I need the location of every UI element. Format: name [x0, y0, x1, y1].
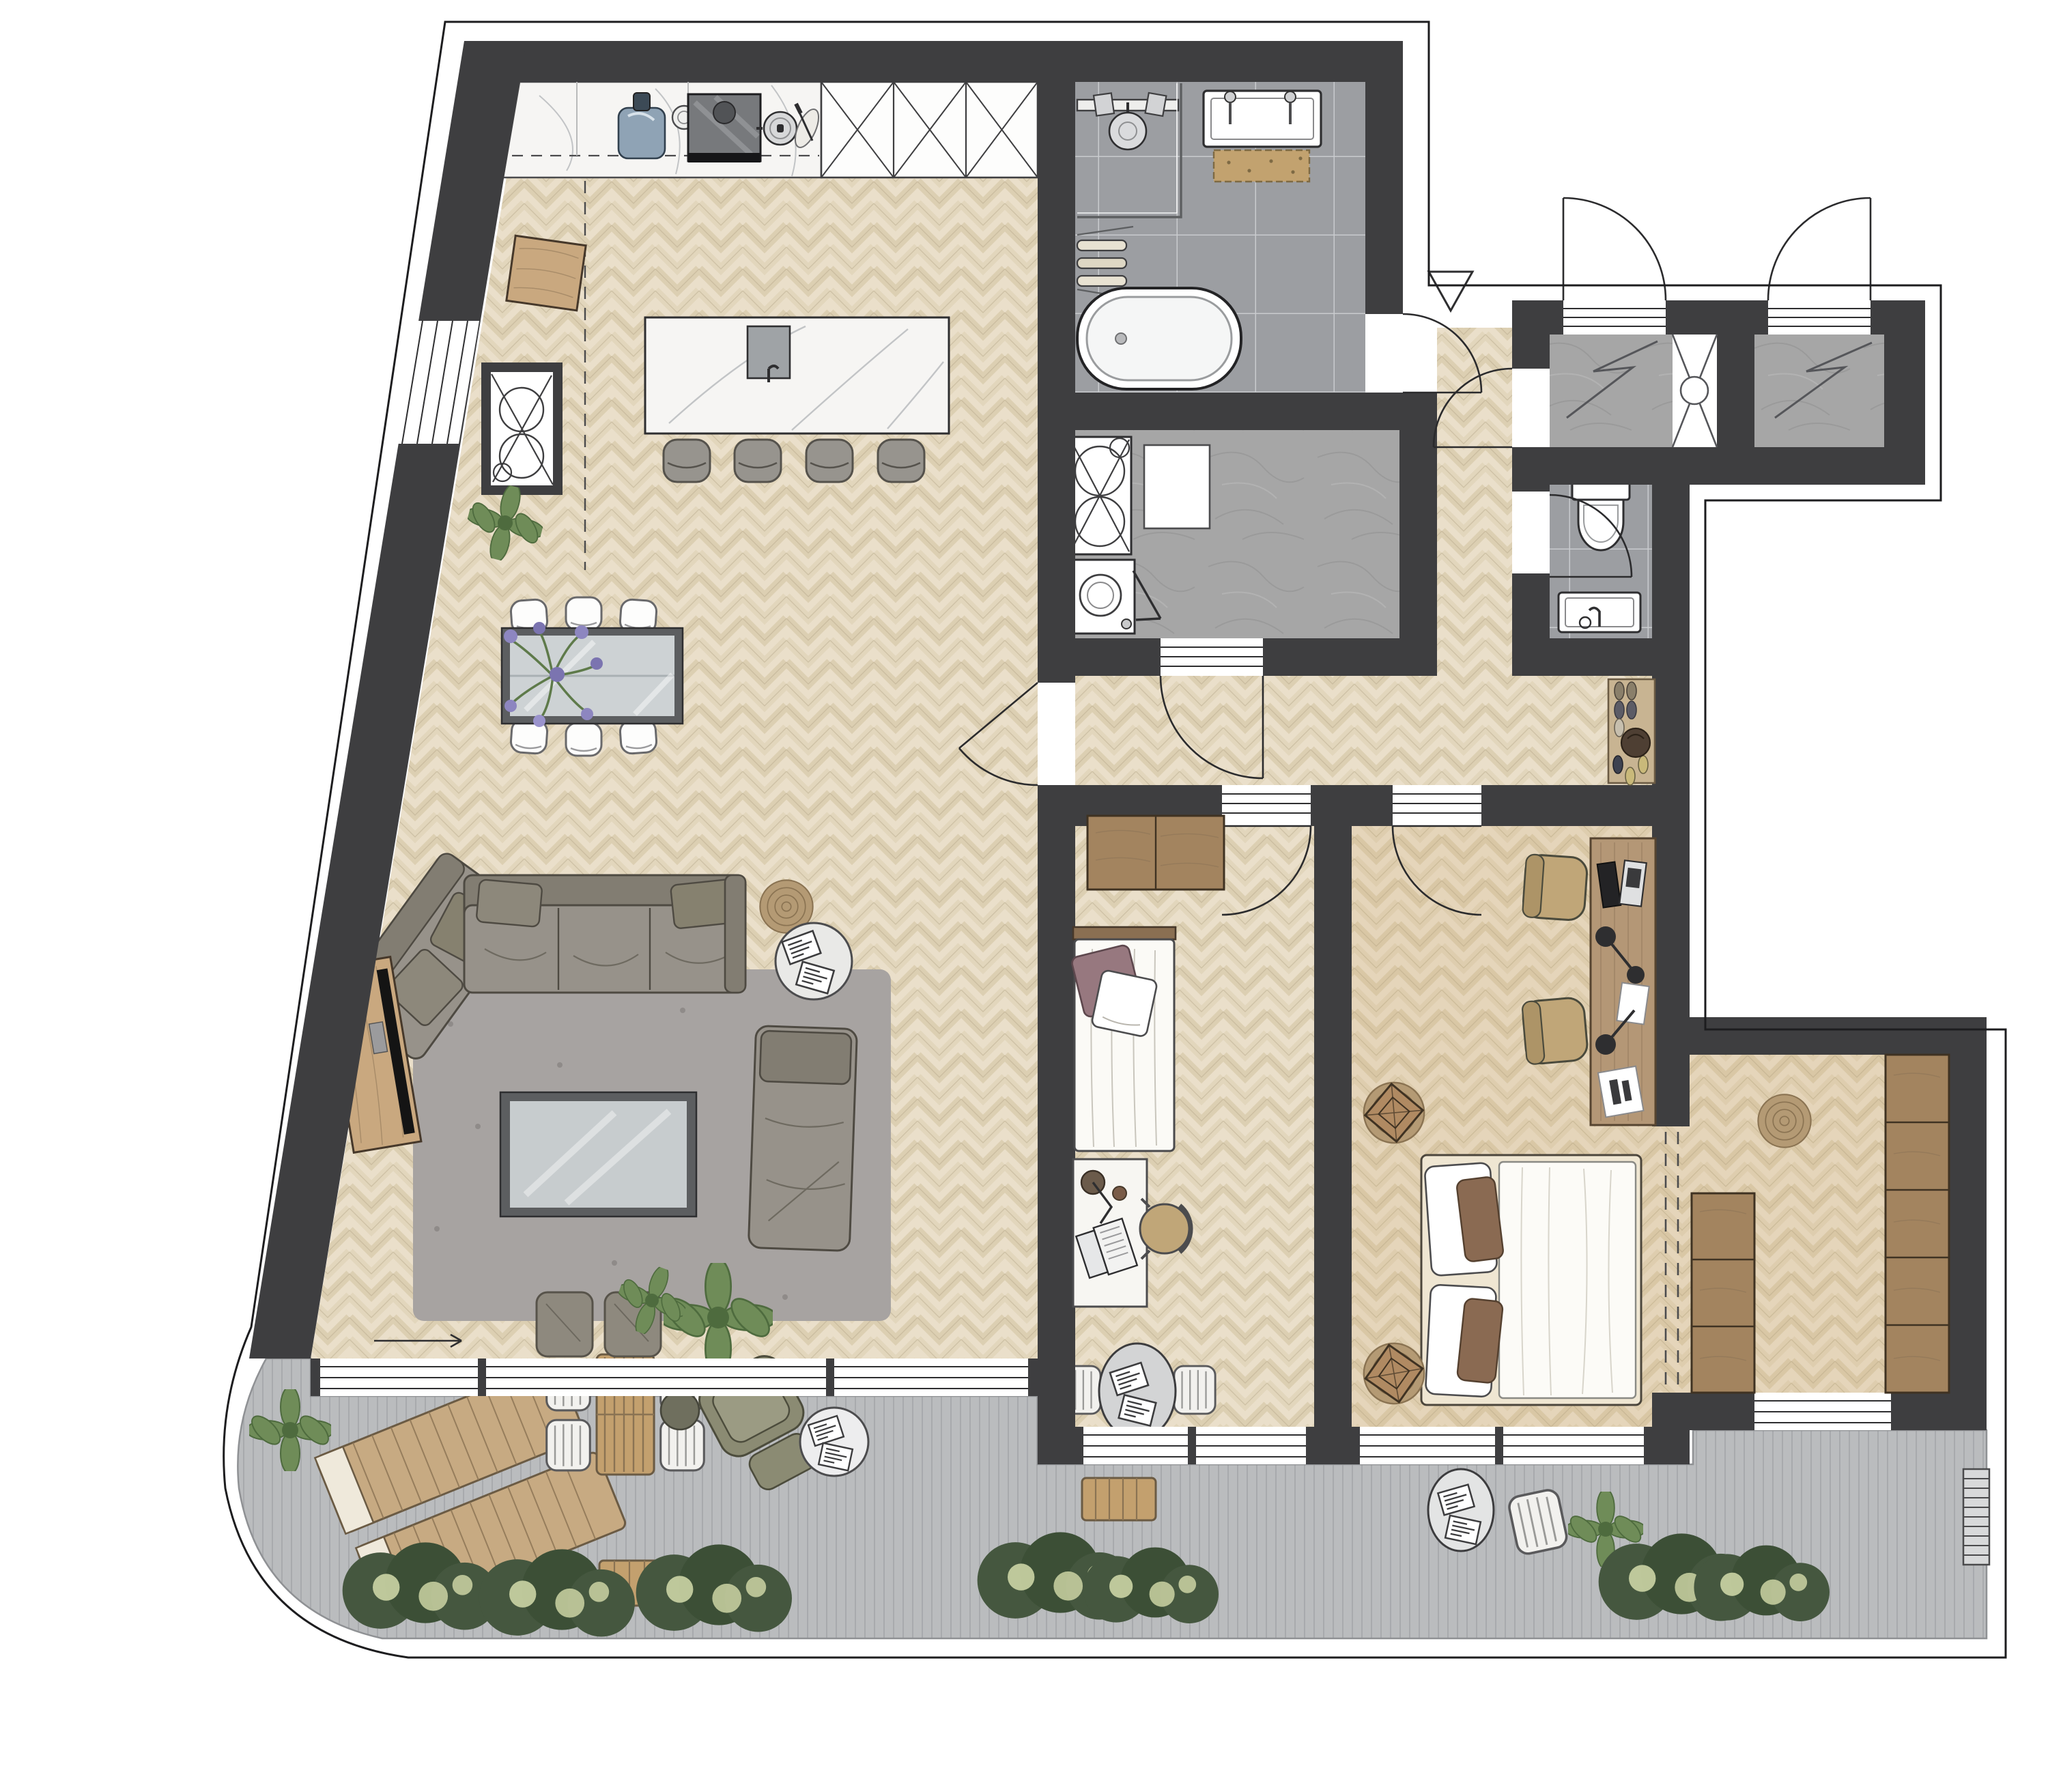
- dining-chair: [566, 723, 601, 756]
- wall-living-bedroom1: [1038, 785, 1075, 1464]
- chaise-pillow: [760, 1031, 852, 1085]
- floor-cushion: [661, 1391, 699, 1430]
- bed-pillow-brown: [1457, 1298, 1503, 1383]
- papers: [1598, 1066, 1644, 1118]
- kitchen-island: [645, 317, 949, 433]
- shoe-rack: [1608, 679, 1655, 785]
- wall-corridor-stub: [1038, 638, 1075, 683]
- wall-bedroom-divider: [1314, 785, 1352, 1427]
- window-bedroom2-south: [1352, 1427, 1652, 1464]
- vestibule1-floor: [1550, 335, 1673, 447]
- bistro-table: [1099, 1343, 1176, 1439]
- window-closet-south: [1754, 1393, 1891, 1430]
- sofa-pillow: [476, 879, 542, 927]
- wall-kitchen-bathroom: [1038, 41, 1075, 638]
- office-laptop: [1619, 860, 1647, 906]
- bedroom1-desk: [1073, 1159, 1147, 1307]
- wall-laundry-hall: [1399, 393, 1437, 676]
- wall-entry-top-a: [1512, 300, 1563, 335]
- wall-console-table: [507, 236, 586, 311]
- wc-basin: [1559, 593, 1640, 632]
- wall-wc-left-b: [1512, 573, 1550, 638]
- double-vanity: [1204, 91, 1321, 147]
- notepad: [1617, 982, 1649, 1024]
- wall-closet-bottom-b: [1891, 1393, 1987, 1430]
- office-desk: [1591, 838, 1655, 1125]
- bistro-chair: [1174, 1366, 1215, 1414]
- floor-plan: Apartment floor plan – rendered top view: [0, 0, 2048, 1792]
- dining-chair: [566, 597, 601, 630]
- wall-bedrooms-top-b: [1311, 785, 1393, 826]
- wall-entry-top-b: [1666, 300, 1768, 335]
- coffee-table: [500, 1092, 696, 1217]
- terrace-armchair: [1507, 1488, 1569, 1556]
- wall-bedrooms-top-c: [1481, 785, 1652, 826]
- entrance-marker-triangle: [1429, 272, 1473, 311]
- bag: [1621, 728, 1650, 757]
- sofa-armrest: [725, 875, 745, 993]
- boiler: [1144, 445, 1210, 528]
- wall-bedroom2-corner: [1652, 1393, 1690, 1464]
- dining-table: [502, 628, 683, 724]
- wall-closet-bottom-a: [1690, 1393, 1754, 1430]
- bar-stool: [735, 440, 781, 482]
- entry-door-2: [1768, 198, 1871, 335]
- vestibule2-floor: [1754, 335, 1884, 447]
- bathtub-drain: [1115, 333, 1126, 344]
- nightstand-top: [1364, 1083, 1424, 1143]
- closet-round-rug: [1758, 1094, 1810, 1147]
- bathtub: [1077, 288, 1241, 389]
- chaise-lounge: [748, 1026, 857, 1251]
- pillow-white: [1091, 969, 1158, 1037]
- headboard: [1073, 927, 1176, 939]
- desk-lamp-2-head: [1627, 966, 1645, 984]
- wall-bathroom-laundry: [1038, 393, 1403, 430]
- wall-laundry-bottom-right: [1263, 638, 1437, 676]
- closet-wardrobe-right: [1886, 1055, 1949, 1393]
- side-table-round: [776, 923, 852, 999]
- bar-stool: [878, 440, 924, 482]
- terrace-slat-screen: [1963, 1469, 1989, 1565]
- bar-stool: [664, 440, 710, 482]
- bar-stool: [806, 440, 853, 482]
- nightstand-bottom: [1364, 1343, 1424, 1404]
- dining-area: [502, 597, 683, 756]
- terrace-bench-2: [1082, 1478, 1156, 1520]
- duvet: [1499, 1162, 1636, 1398]
- closet-wardrobe-left: [1692, 1193, 1754, 1393]
- wall-closet-right: [1949, 1017, 1987, 1430]
- floor-plan-canvas: Apartment floor plan – rendered top view: [0, 0, 2048, 1792]
- wall-closet-top: [1652, 1017, 1987, 1055]
- cooktop: [688, 94, 760, 162]
- window-bedroom1-south: [1075, 1427, 1314, 1464]
- double-bed: [1421, 1155, 1641, 1405]
- bedroom1-bed: [1070, 927, 1176, 1151]
- terrace-chair: [547, 1420, 591, 1470]
- wall-entry-bottom: [1512, 447, 1925, 485]
- entry-door-1: [1563, 198, 1666, 335]
- faucet: [634, 93, 650, 111]
- washer-dryer-stack-symbol: [1068, 437, 1131, 554]
- wall-entry-left: [1512, 335, 1550, 369]
- bath-mat: [1214, 150, 1309, 182]
- bedroom1-wardrobe: [1087, 816, 1224, 890]
- installation-shaft-kitchen: [486, 367, 558, 490]
- wall-entry-mid: [1717, 335, 1754, 447]
- mug: [1113, 1186, 1126, 1200]
- wall-wc-bottom: [1512, 638, 1690, 676]
- rain-shower-head: [1109, 113, 1146, 150]
- wall-top: [464, 41, 1403, 82]
- wall-divider-foot: [1314, 1427, 1352, 1464]
- entry-hall-floor: [1437, 328, 1512, 677]
- office-chair-1: [1522, 854, 1588, 921]
- office-chair-2: [1522, 997, 1589, 1064]
- tall-cabinets: [821, 82, 1038, 177]
- wall-bathroom-right: [1365, 41, 1403, 314]
- side-table-round-2: [800, 1408, 868, 1476]
